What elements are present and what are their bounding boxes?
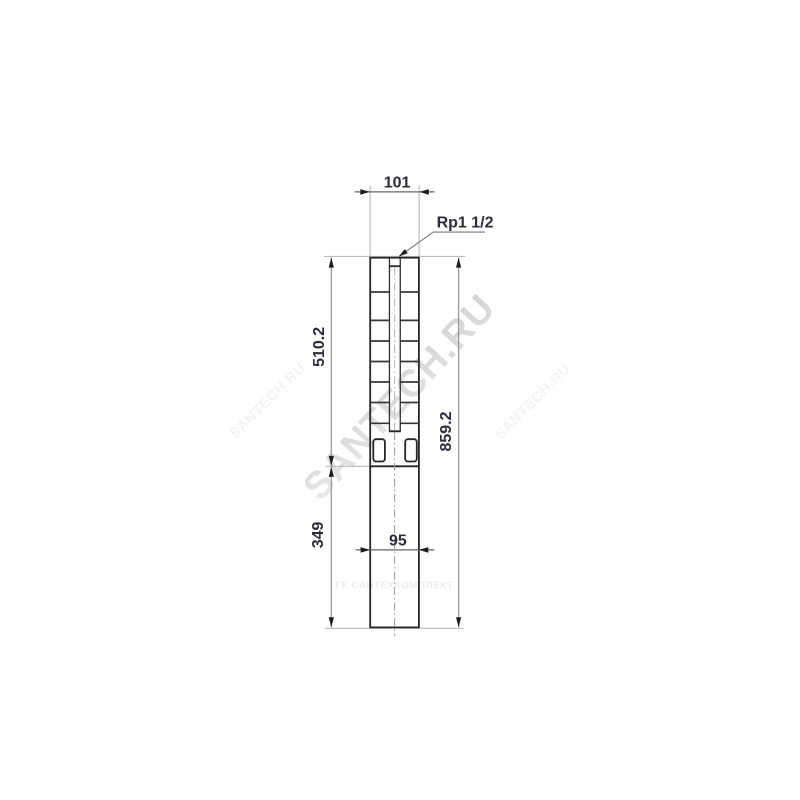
- svg-text:349: 349: [310, 521, 327, 548]
- svg-text:95: 95: [389, 533, 407, 550]
- svg-text:Rp1 1/2: Rp1 1/2: [437, 214, 494, 231]
- svg-text:101: 101: [384, 175, 411, 192]
- svg-text:859.2: 859.2: [438, 411, 455, 451]
- svg-text:510.2: 510.2: [311, 327, 328, 367]
